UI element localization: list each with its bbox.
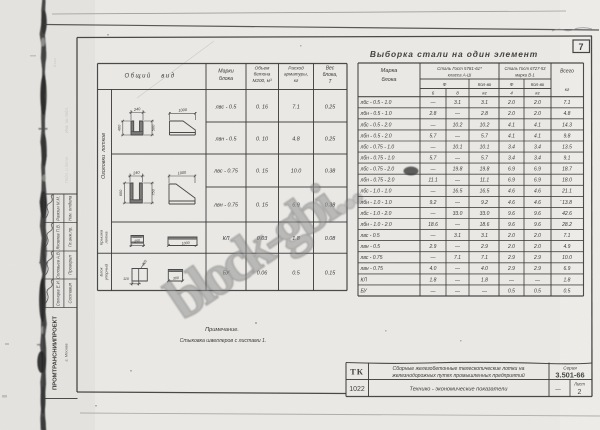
svg-text:Рамзин М.М.: Рамзин М.М. (56, 196, 61, 221)
svg-text:—: — (430, 167, 437, 173)
svg-text:0.15: 0.15 (325, 270, 336, 276)
svg-text:1.8: 1.8 (481, 277, 488, 283)
svg-text:—: — (430, 211, 437, 217)
svg-text:4.1: 4.1 (534, 133, 541, 139)
svg-text:9.2: 9.2 (481, 200, 488, 206)
svg-text:Кол-во: Кол-во (478, 82, 492, 87)
svg-text:6.9: 6.9 (534, 178, 541, 184)
svg-text:лбн - 0.75 - 1.0: лбн - 0.75 - 1.0 (360, 155, 395, 161)
svg-text:лбн - 1.0 - 1.0: лбн - 1.0 - 1.0 (360, 200, 392, 206)
svg-text:19.8: 19.8 (453, 167, 463, 173)
svg-text:0. 16: 0. 16 (256, 104, 268, 110)
svg-text:Вес: Вес (326, 66, 335, 72)
svg-text:упорный: упорный (104, 263, 109, 281)
svg-text:0. 10: 0. 10 (256, 136, 268, 142)
svg-text:—: — (454, 277, 461, 283)
svg-text:4: 4 (510, 91, 513, 96)
svg-text:—: — (454, 178, 461, 184)
svg-text:2.9: 2.9 (429, 244, 437, 250)
svg-text:Лист: Лист (573, 382, 585, 387)
svg-text:2.0: 2.0 (507, 100, 515, 106)
svg-text:—: — (430, 189, 437, 195)
svg-text:арматуры,: арматуры, (284, 72, 308, 77)
svg-text:Стыковка швеллеров с листами 1: Стыковка швеллеров с листами 1. (180, 338, 267, 344)
svg-text:М200, м³: М200, м³ (252, 78, 272, 83)
svg-text:Сталь Гост 6727-53: Сталь Гост 6727-53 (505, 66, 547, 71)
svg-text:2.0: 2.0 (507, 111, 515, 117)
svg-text:1000: 1000 (178, 107, 188, 113)
svg-text:3.4: 3.4 (534, 155, 541, 161)
svg-text:лбс - 1.0 - 1.0: лбс - 1.0 - 1.0 (360, 189, 392, 195)
svg-text:—: — (454, 266, 461, 272)
svg-text:1.8: 1.8 (564, 277, 571, 283)
svg-text:Гл.инж.пр.: Гл.инж.пр. (68, 226, 73, 247)
svg-text:Солнцев Е.И.: Солнцев Е.И. (56, 280, 61, 306)
svg-text:7: 7 (578, 42, 583, 52)
svg-text:2.0: 2.0 (507, 244, 515, 250)
svg-text:0.5: 0.5 (508, 288, 515, 294)
svg-text:кг: кг (565, 87, 570, 92)
svg-text:10.2: 10.2 (480, 122, 490, 128)
svg-text:4.6: 4.6 (534, 189, 541, 195)
svg-text:марки В-1: марки В-1 (515, 73, 535, 78)
svg-text:—: — (430, 288, 437, 294)
svg-text:3.1: 3.1 (481, 233, 488, 239)
svg-text:4.8: 4.8 (564, 111, 571, 117)
svg-text:3.1: 3.1 (454, 233, 461, 239)
svg-text:7.1: 7.1 (454, 255, 461, 261)
svg-text:Выборка стали на один элемент: Выборка стали на один элемент (370, 49, 538, 59)
svg-text:28.2: 28.2 (561, 222, 572, 228)
svg-text:БУ: БУ (361, 288, 368, 294)
svg-text:2.9: 2.9 (507, 255, 515, 261)
svg-text:8: 8 (456, 91, 459, 96)
svg-text:кг: кг (294, 78, 299, 83)
svg-text:10.2: 10.2 (453, 122, 463, 128)
svg-text:—: — (454, 111, 461, 117)
svg-text:3.4: 3.4 (534, 144, 541, 150)
svg-text:19.8: 19.8 (480, 167, 490, 173)
svg-text:0.5: 0.5 (534, 288, 541, 294)
svg-text:лвс - 0.75: лвс - 0.75 (213, 168, 239, 174)
svg-text:9.6: 9.6 (534, 211, 541, 217)
svg-text:110: 110 (123, 277, 129, 281)
svg-text:—: — (454, 288, 461, 294)
svg-text:Ф: Ф (443, 82, 447, 88)
svg-text:3.4: 3.4 (508, 155, 515, 161)
svg-text:21.1: 21.1 (561, 189, 572, 195)
svg-text:лбс - 0.5 - 2.0: лбс - 0.5 - 2.0 (360, 122, 392, 128)
svg-text:9.1: 9.1 (564, 155, 571, 161)
svg-text:Расход: Расход (288, 66, 304, 71)
svg-text:18.6: 18.6 (428, 222, 438, 228)
svg-text:лвс - 0.75: лвс - 0.75 (360, 255, 383, 261)
svg-text:9.6: 9.6 (508, 222, 515, 228)
svg-text:4.1: 4.1 (534, 122, 541, 128)
svg-text:5.7: 5.7 (430, 155, 437, 161)
svg-text:6: 6 (432, 91, 435, 96)
svg-text:750: 750 (150, 188, 155, 195)
svg-text:—: — (454, 133, 461, 139)
svg-text:лбн - 0.5 - 2.0: лбн - 0.5 - 2.0 (360, 133, 392, 139)
svg-text:лвн - 0.5: лвн - 0.5 (360, 244, 381, 250)
svg-text:6.9: 6.9 (508, 167, 515, 173)
svg-text:1.8: 1.8 (430, 277, 437, 283)
svg-text:—: — (534, 277, 541, 283)
svg-text:Составил: Составил (68, 282, 73, 303)
svg-text:400: 400 (116, 124, 121, 131)
svg-text:16.5: 16.5 (453, 189, 463, 195)
svg-text:лотка: лотка (104, 231, 109, 245)
svg-text:лвс - 0.5: лвс - 0.5 (215, 104, 238, 110)
svg-text:класса А-Ш: класса А-Ш (448, 73, 472, 78)
svg-text:Марка: Марка (381, 68, 398, 74)
svg-text:14.3: 14.3 (562, 122, 572, 128)
svg-text:4.6: 4.6 (534, 200, 541, 206)
svg-text:2.9: 2.9 (533, 255, 541, 261)
svg-text:9.8: 9.8 (564, 133, 571, 139)
svg-text:лбс - 0.75 - 1.0: лбс - 0.75 - 1.0 (360, 144, 395, 150)
svg-text:2.8: 2.8 (429, 111, 437, 117)
svg-text:лвн - 0.75: лвн - 0.75 (360, 266, 384, 272)
svg-text:18.0: 18.0 (562, 178, 572, 184)
svg-text:4.8: 4.8 (292, 136, 300, 142)
svg-text:0. 15: 0. 15 (256, 168, 269, 174)
svg-text:2: 2 (578, 389, 582, 396)
svg-text:Сборные железобетонные телеско: Сборные железобетонные телескопические л… (393, 366, 525, 372)
svg-text:Сталь Гост 5781-61*: Сталь Гост 5781-61* (437, 66, 482, 71)
svg-text:—: — (508, 277, 515, 283)
svg-text:4.1: 4.1 (508, 122, 515, 128)
svg-text:4.6: 4.6 (508, 189, 515, 195)
svg-text:11.1: 11.1 (480, 178, 490, 184)
svg-text:лбс - 0.5 - 1.0: лбс - 0.5 - 1.0 (360, 100, 392, 106)
svg-text:—: — (454, 222, 461, 228)
svg-text:—: — (430, 100, 437, 106)
svg-text:3.1: 3.1 (454, 100, 461, 106)
svg-text:9.2: 9.2 (430, 200, 437, 206)
svg-text:7.1: 7.1 (564, 233, 571, 239)
svg-text:250: 250 (133, 239, 140, 244)
svg-text:7.1: 7.1 (564, 100, 571, 106)
svg-text:—: — (430, 122, 437, 128)
svg-text:33.0: 33.0 (480, 211, 490, 217)
svg-text:КЛ: КЛ (361, 277, 368, 283)
svg-text:2.9: 2.9 (507, 266, 515, 272)
svg-text:9.6: 9.6 (508, 211, 515, 217)
svg-text:33.0: 33.0 (453, 211, 463, 217)
svg-text:0.5: 0.5 (292, 270, 300, 276)
svg-text:7.1: 7.1 (481, 255, 488, 261)
svg-text:Всего: Всего (560, 69, 574, 75)
svg-text:4.0: 4.0 (430, 266, 437, 272)
svg-text:лбн - 0.5 - 1.0: лбн - 0.5 - 1.0 (360, 111, 392, 117)
svg-text:Взам.: Взам. (52, 57, 57, 68)
svg-text:Оголовки лотков: Оголовки лотков (101, 133, 107, 179)
svg-text:2.9: 2.9 (533, 266, 541, 272)
svg-text:0.5: 0.5 (564, 288, 571, 294)
svg-text:Объем: Объем (255, 66, 271, 71)
svg-text:Кол-во: Кол-во (531, 82, 545, 87)
svg-text:лбн - 1.0 - 2.0: лбн - 1.0 - 2.0 (360, 222, 392, 228)
svg-text:Марки: Марки (218, 69, 234, 75)
svg-text:2.9: 2.9 (480, 244, 488, 250)
svg-text:—: — (481, 288, 488, 294)
svg-text:2.0: 2.0 (533, 244, 541, 250)
svg-text:2.0: 2.0 (533, 111, 541, 117)
svg-text:—: — (454, 155, 461, 161)
svg-text:4.0: 4.0 (481, 266, 488, 272)
svg-text:2.0: 2.0 (533, 100, 541, 106)
svg-text:7.1: 7.1 (292, 104, 300, 110)
svg-text:6.9: 6.9 (534, 167, 541, 173)
svg-text:железнодорожных путях промышле: железнодорожных путях промышленных предп… (391, 372, 525, 379)
svg-text:10.1: 10.1 (480, 144, 490, 150)
svg-text:3.501-66: 3.501-66 (555, 371, 584, 380)
svg-text:3.1: 3.1 (481, 100, 488, 106)
svg-text:0.25: 0.25 (325, 104, 336, 110)
svg-text:3.4: 3.4 (508, 144, 515, 150)
svg-text:блока: блока (219, 76, 233, 82)
svg-text:6.9: 6.9 (564, 266, 571, 272)
svg-text:бетона: бетона (254, 72, 271, 77)
svg-text:13.8: 13.8 (562, 200, 572, 206)
svg-text:—: — (430, 255, 437, 261)
svg-text:—: — (454, 244, 461, 250)
svg-text:6.9: 6.9 (508, 178, 515, 184)
svg-text:1000: 1000 (177, 169, 187, 175)
svg-text:0.25: 0.25 (325, 136, 336, 142)
svg-text:ТК: ТК (350, 367, 364, 377)
svg-text:Нач. отдела: Нач. отдела (68, 195, 73, 221)
svg-text:—: — (430, 144, 437, 150)
svg-text:лвн - 0.75: лвн - 0.75 (213, 202, 239, 208)
svg-text:—: — (554, 387, 561, 393)
svg-text:Инв. № подл.: Инв. № подл. (64, 107, 69, 133)
svg-text:лвс - 0.5: лвс - 0.5 (360, 233, 380, 239)
svg-text:Подп. и дата: Подп. и дата (64, 156, 69, 183)
svg-text:11.1: 11.1 (428, 178, 438, 184)
svg-text:18.7: 18.7 (562, 167, 572, 173)
svg-text:1000: 1000 (182, 241, 190, 246)
svg-text:600: 600 (118, 189, 123, 196)
svg-text:лбс - 0.75 - 2.0: лбс - 0.75 - 2.0 (360, 167, 395, 173)
svg-text:10.0: 10.0 (291, 168, 302, 174)
svg-text:10.1: 10.1 (453, 144, 463, 150)
svg-text:—: — (454, 200, 461, 206)
svg-text:5.7: 5.7 (481, 133, 488, 139)
svg-text:Соловьев А.В.: Соловьев А.В. (56, 251, 61, 279)
svg-text:2.0: 2.0 (507, 233, 515, 239)
svg-text:2.0: 2.0 (533, 233, 541, 239)
svg-text:Яковлев П.В.: Яковлев П.В. (56, 224, 61, 250)
svg-text:лбн - 0.75 - 2.0: лбн - 0.75 - 2.0 (360, 178, 395, 184)
svg-text:10.0: 10.0 (562, 255, 572, 261)
svg-text:1022: 1022 (349, 386, 365, 393)
svg-text:4.6: 4.6 (508, 200, 515, 206)
svg-text:Ф: Ф (510, 82, 514, 88)
svg-text:42.6: 42.6 (562, 211, 572, 217)
svg-text:4.9: 4.9 (564, 244, 571, 250)
svg-text:ПРОМТРАНСНИИПРОЕКТ: ПРОМТРАНСНИИПРОЕКТ (53, 316, 59, 390)
svg-text:16.5: 16.5 (480, 189, 490, 195)
svg-text:2.8: 2.8 (480, 111, 488, 117)
svg-text:Общий вид: Общий вид (124, 73, 175, 80)
svg-text:г. Москва: г. Москва (64, 343, 69, 362)
svg-text:—: — (430, 233, 437, 239)
svg-text:блока: блока (381, 77, 396, 83)
svg-text:Примечание.: Примечание. (205, 327, 239, 333)
svg-text:9.6: 9.6 (534, 222, 541, 228)
svg-text:лбс - 1.0 - 2.0: лбс - 1.0 - 2.0 (360, 211, 392, 217)
svg-text:Проверил: Проверил (68, 255, 73, 275)
svg-text:5.7: 5.7 (430, 133, 437, 139)
svg-text:13.5: 13.5 (562, 144, 572, 150)
svg-text:блока,: блока, (323, 72, 338, 78)
svg-text:18.6: 18.6 (480, 222, 490, 228)
svg-text:5.7: 5.7 (481, 155, 488, 161)
svg-text:500: 500 (150, 124, 155, 131)
svg-text:Технико - экономические показа: Технико - экономические показатели (410, 387, 508, 393)
svg-text:4.1: 4.1 (508, 133, 515, 139)
svg-text:лвн - 0.5: лвн - 0.5 (214, 136, 237, 142)
